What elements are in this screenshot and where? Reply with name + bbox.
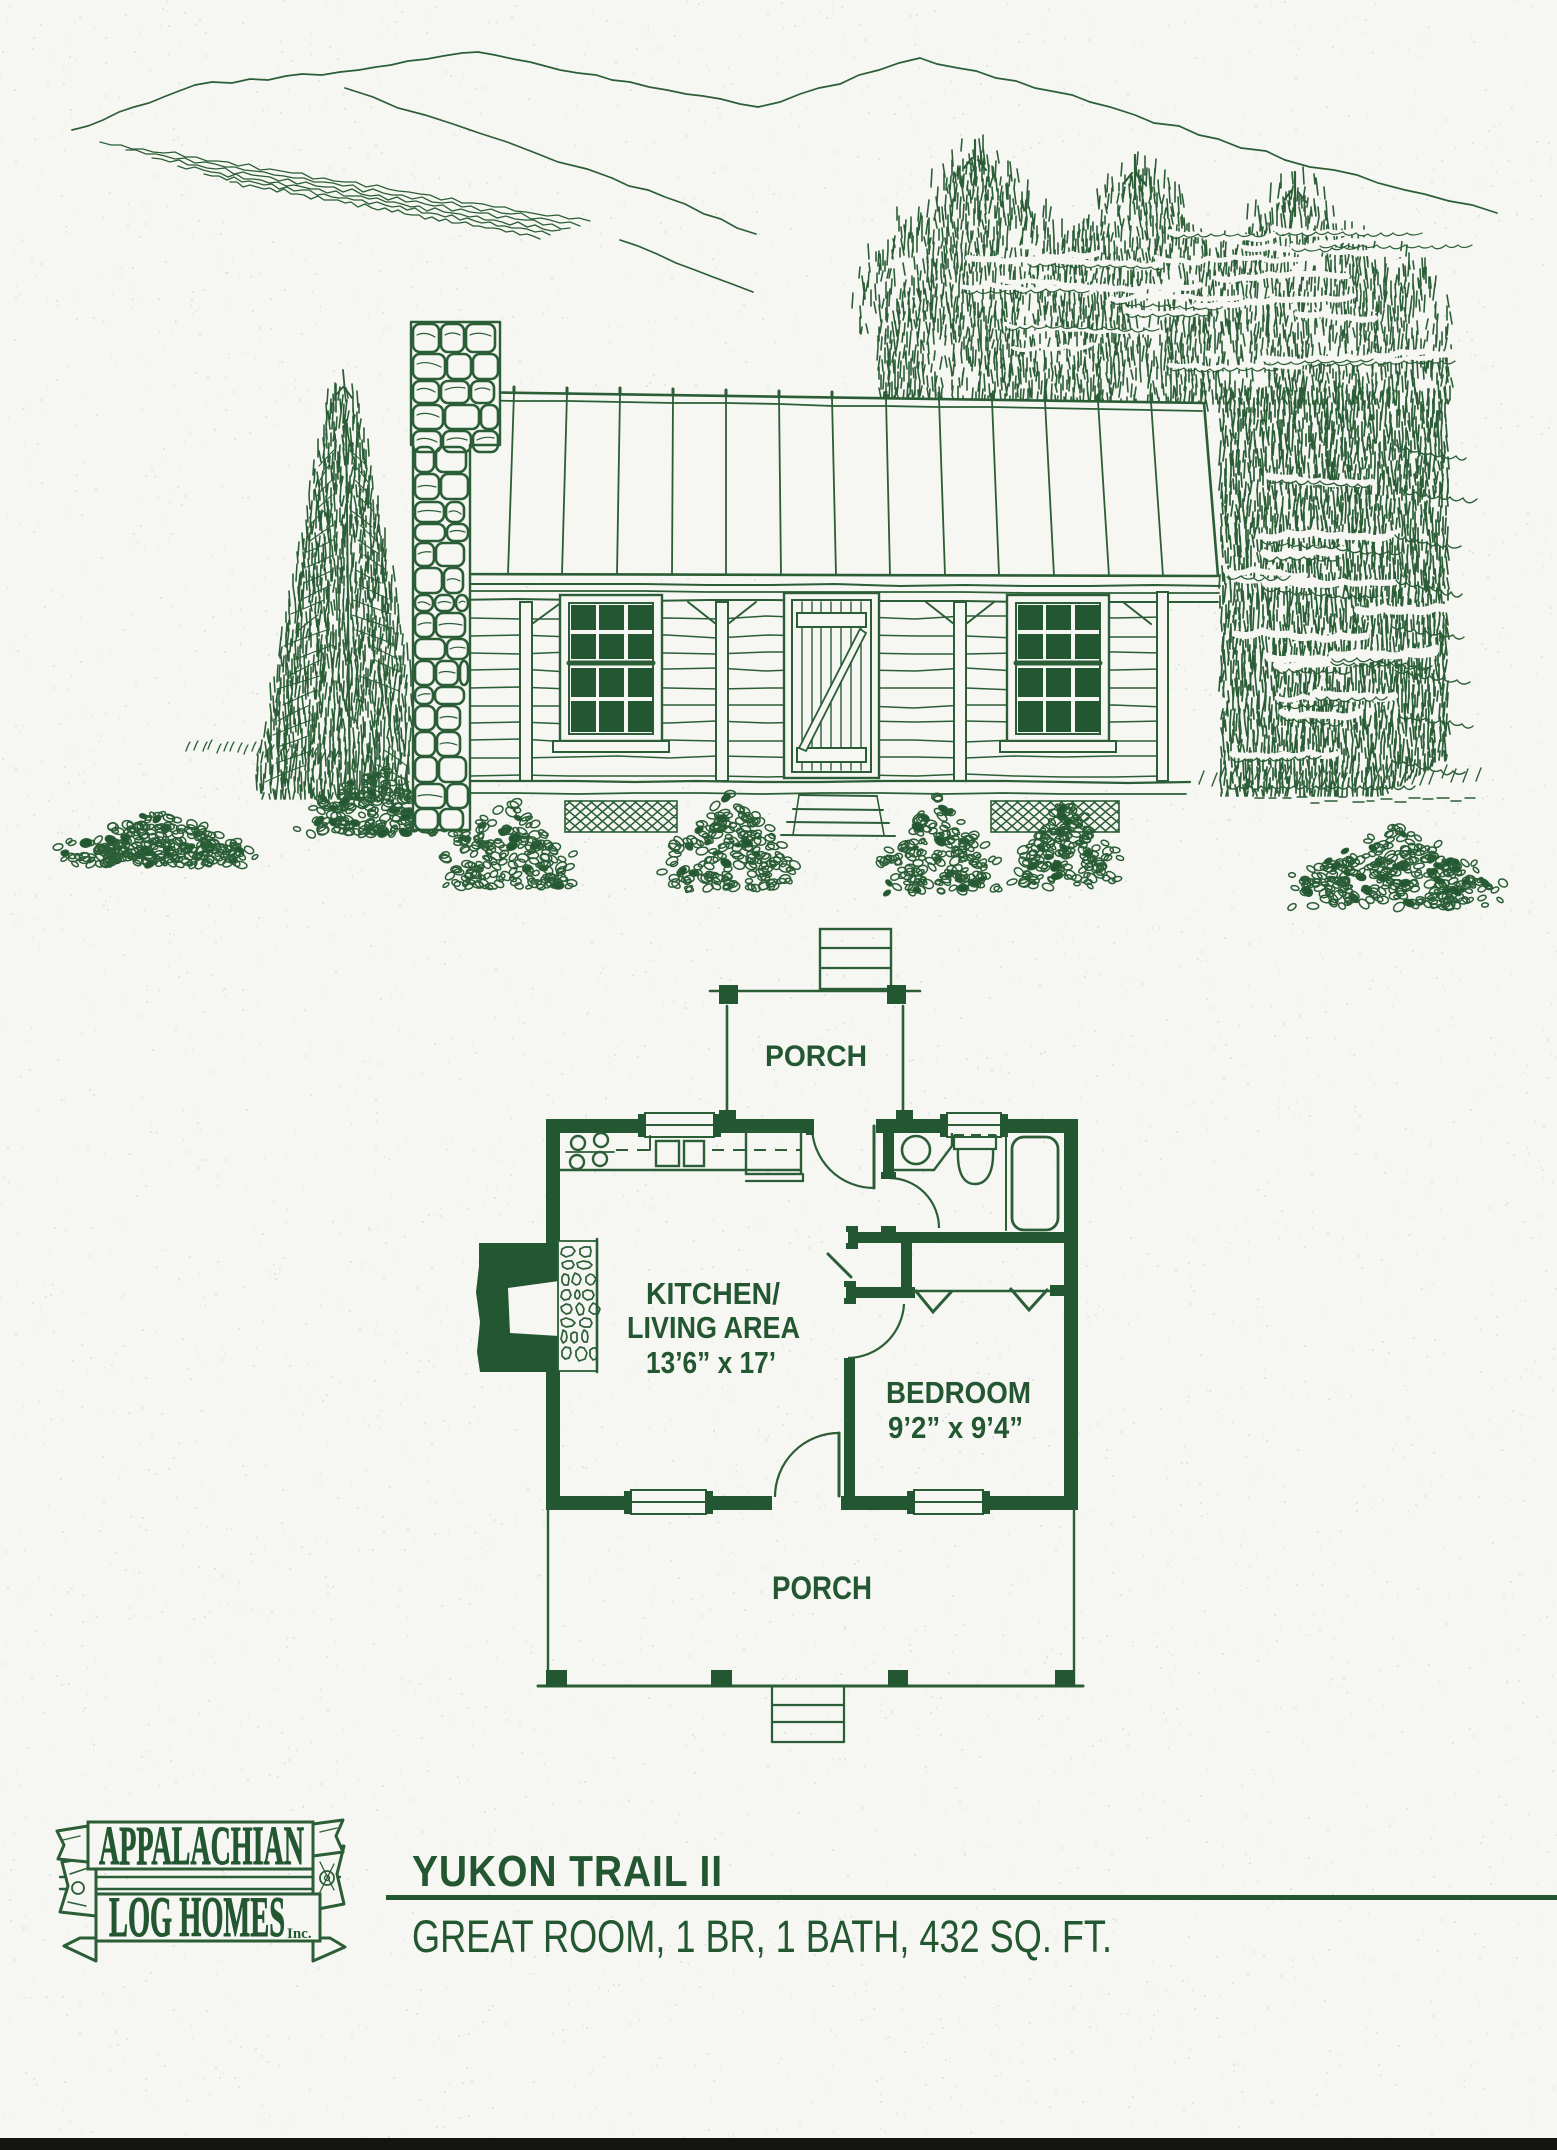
- svg-text:BEDROOM: BEDROOM: [886, 1375, 1031, 1410]
- svg-text:KITCHEN/: KITCHEN/: [646, 1276, 780, 1311]
- svg-text:Inc.: Inc.: [287, 1926, 312, 1942]
- svg-text:13’6” x 17’: 13’6” x 17’: [646, 1345, 776, 1380]
- svg-text:9’2” x 9’4”: 9’2” x 9’4”: [888, 1410, 1023, 1445]
- svg-text:APPALACHIAN: APPALACHIAN: [99, 1815, 304, 1876]
- svg-text:LOG HOMES: LOG HOMES: [109, 1886, 285, 1949]
- svg-text:PORCH: PORCH: [765, 1040, 867, 1073]
- svg-text:PORCH: PORCH: [772, 1570, 872, 1606]
- svg-text:YUKON TRAIL II: YUKON TRAIL II: [412, 1847, 723, 1896]
- svg-text:GREAT ROOM, 1 BR, 1 BATH, 432: GREAT ROOM, 1 BR, 1 BATH, 432 SQ. FT.: [412, 1911, 1112, 1962]
- svg-text:LIVING AREA: LIVING AREA: [627, 1310, 800, 1345]
